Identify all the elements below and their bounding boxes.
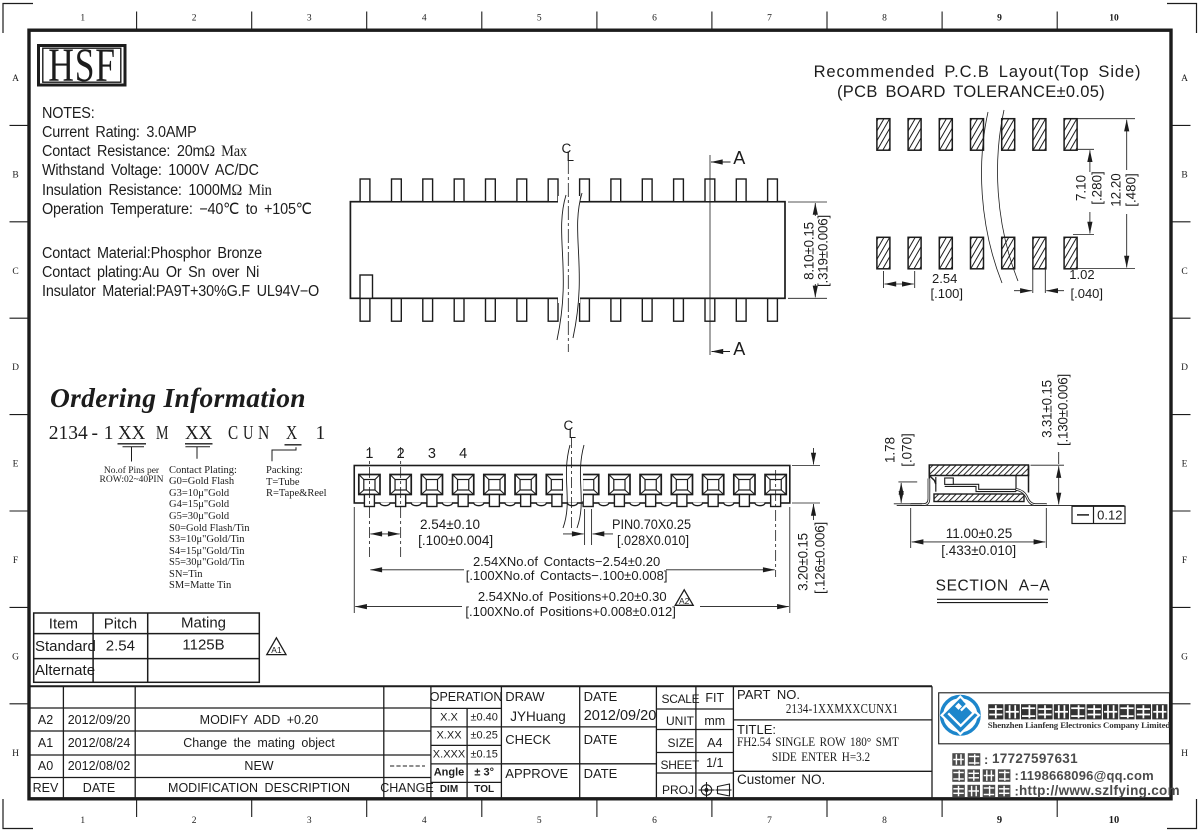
svg-text:A1: A1 <box>271 645 282 655</box>
svg-text:2: 2 <box>192 816 197 826</box>
svg-text:D: D <box>1181 363 1188 373</box>
svg-text:E: E <box>13 460 19 470</box>
svg-text:2: 2 <box>192 14 197 24</box>
svg-text:1: 1 <box>80 14 85 24</box>
svg-text:A2: A2 <box>679 596 690 606</box>
svg-text:H: H <box>12 749 19 759</box>
svg-text:9: 9 <box>997 14 1002 24</box>
svg-text:1: 1 <box>80 816 85 826</box>
svg-text:6: 6 <box>652 14 657 24</box>
svg-text:6: 6 <box>652 816 657 826</box>
svg-text:5: 5 <box>537 14 542 24</box>
svg-text:C: C <box>1181 267 1187 277</box>
svg-text:10: 10 <box>1109 14 1119 24</box>
svg-text:A: A <box>1181 74 1188 84</box>
svg-text:B: B <box>1181 170 1187 180</box>
svg-text:H: H <box>1181 749 1188 759</box>
svg-text:5: 5 <box>537 816 542 826</box>
svg-text:G: G <box>12 652 19 662</box>
svg-text:D: D <box>12 363 19 373</box>
svg-text:C: C <box>12 267 18 277</box>
svg-text:4: 4 <box>422 14 427 24</box>
svg-text:A: A <box>12 74 19 84</box>
svg-text::: : <box>1015 768 1019 783</box>
svg-text:7: 7 <box>767 816 772 826</box>
svg-text:G: G <box>1181 652 1188 662</box>
svg-text:10: 10 <box>1109 815 1120 826</box>
svg-text:4: 4 <box>422 816 427 826</box>
svg-text:9: 9 <box>997 815 1002 826</box>
svg-text:7: 7 <box>767 14 772 24</box>
svg-text:F: F <box>1182 556 1187 566</box>
svg-text:F: F <box>13 556 18 566</box>
svg-text:3: 3 <box>307 14 312 24</box>
svg-text:3: 3 <box>307 816 312 826</box>
svg-text::: : <box>984 752 988 767</box>
svg-text:E: E <box>1182 460 1188 470</box>
svg-text:8: 8 <box>882 14 887 24</box>
svg-text:8: 8 <box>882 816 887 826</box>
svg-text:B: B <box>12 170 18 180</box>
